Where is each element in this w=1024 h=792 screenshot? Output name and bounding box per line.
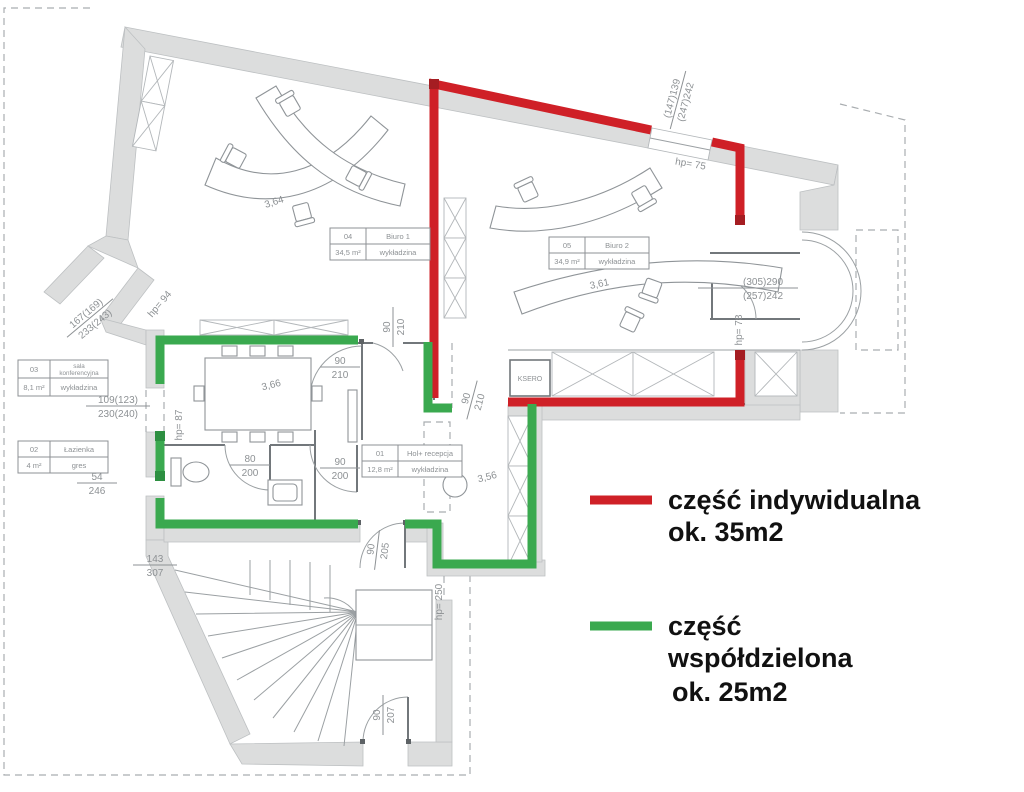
room-id: 02 [30,445,38,454]
reception-desk [348,390,357,442]
bay-window [710,232,861,350]
dim-hp87: hp= 87 [174,409,185,440]
dim-hp78: hp= 78 [734,314,745,345]
legend-shared-line2: współdzielona [667,643,854,673]
svg-text:90: 90 [372,709,383,721]
dim-90-210: 90 210 [320,356,360,381]
chair [194,386,204,401]
cabinet-middle [444,198,466,318]
cabinet-above-conference [200,320,348,335]
dim-90-210: 90 210 [456,378,491,423]
dim-147-247: (147)139 (247)242 [660,68,700,132]
svg-text:90: 90 [365,543,377,556]
svg-text:210: 210 [332,370,349,381]
room-id: 05 [563,241,571,250]
room-id: 03 [30,365,38,374]
room-area: 8,1 m² [23,383,45,392]
site-boundary-right [840,104,905,413]
wall-bottom-1 [230,742,363,766]
chair [278,346,293,356]
room-floor: wykładzina [60,383,99,392]
room-label-biuro1: 04 Biuro 1 34,5 m² wykładzina [330,228,430,260]
ksero-label: KSERO [518,376,543,383]
window-top [648,128,712,160]
chair [250,346,265,356]
svg-text:307: 307 [147,568,164,579]
room-name-line1: sala [73,363,85,370]
svg-text:80: 80 [244,454,256,465]
dim-109-230: 109(123) 230(240) [86,395,150,420]
cabinet-biuro2-bottom [552,352,797,396]
svg-text:(257)242: (257)242 [743,291,783,302]
zone-cap [429,79,439,89]
room-name: Hol+ recepcja [407,449,454,458]
legend-shared-line1: część [668,611,742,641]
ksero-room: KSERO [510,360,550,396]
office-chair [290,202,315,227]
door-jamb [406,739,411,744]
wall-bottom-right-wing [508,405,800,420]
room-floor: gres [72,461,87,470]
door-jamb [360,739,365,744]
svg-text:54: 54 [91,472,103,483]
chair [278,432,293,442]
zone-cap [735,215,745,225]
room-floor: wykładzina [379,248,418,257]
toilet-bowl [183,462,209,482]
legend-individual-line2: ok. 35m2 [668,517,784,547]
dim-90-210: 90 210 [382,307,407,347]
dim-hp250: hp= 250 [434,583,445,620]
svg-text:(305)290: (305)290 [743,277,783,288]
legend: część indywidualna ok. 35m2 część współd… [590,485,921,707]
svg-text:207: 207 [386,706,397,723]
room-area: 34,5 m² [335,248,361,257]
svg-text:90: 90 [382,321,393,333]
stair-upper-steps [250,560,330,612]
room-label-sala: 03 sala konferencyjna 8,1 m² wykładzina [18,360,108,396]
room-id: 04 [344,232,352,241]
conference-table [205,358,311,430]
dim-90-207: 90 207 [372,695,397,735]
room-name: Biuro 2 [605,241,629,250]
legend-shared-line3: ok. 25m2 [672,677,788,707]
svg-text:90: 90 [334,457,346,468]
office-chair [618,306,645,333]
door-hall-top-arc [373,343,403,371]
floor-plan-page: KSERO 04 Biuro 1 34,5 m² wykładzina 05 B… [0,0,1024,792]
svg-text:200: 200 [332,471,349,482]
furniture-biuro1 [205,86,405,227]
shared-zone-line [160,498,358,524]
svg-text:210: 210 [396,318,407,335]
dim-hp94: hp= 94 [146,289,175,320]
room-area: 34,9 m² [554,257,580,266]
floor-plan-svg: KSERO 04 Biuro 1 34,5 m² wykładzina 05 B… [0,0,1024,792]
room-label-biuro2: 05 Biuro 2 34,9 m² wykładzina [549,237,649,269]
chair [222,346,237,356]
room-area: 12,8 m² [367,465,393,474]
chair [222,432,237,442]
dim-54-246: 54 246 [77,472,117,497]
bay-arc-inner [802,240,853,342]
dim-90-205: 90 205 [364,529,394,572]
room-label-hol: 01 Hol+ recepcja 12,8 m² wykładzina [362,445,462,477]
room-name: Łazienka [64,445,95,454]
chair [312,386,322,401]
furniture-conference [194,346,322,442]
wall-bottom-2 [408,742,452,766]
room-name-line2: konferencyjna [59,370,99,377]
toilet-tank [171,458,181,486]
zone-cap [155,471,165,481]
dim-90-200: 90 200 [320,457,360,482]
room-floor: wykładzina [411,465,450,474]
room-floor: wykładzina [598,257,637,266]
room-label-lazienka: 02 Łazienka 4 m² gres [18,441,108,473]
svg-text:205: 205 [379,542,392,560]
zone-cap [155,431,165,441]
svg-text:109(123): 109(123) [98,395,138,406]
wall-entry-band-a [44,246,104,304]
svg-text:143: 143 [147,554,164,565]
zone-cap [735,350,745,360]
svg-text:230(240): 230(240) [98,409,138,420]
svg-text:90: 90 [334,356,346,367]
office-chair [513,176,540,203]
svg-text:246: 246 [89,486,106,497]
bay-dashed-rect [856,230,898,350]
wall-right-lower [800,350,838,412]
door-jamb [359,339,364,344]
room-id: 01 [376,449,384,458]
chair [250,432,265,442]
svg-text:200: 200 [242,468,259,479]
wall-bottom-wing-right [436,600,452,742]
room-name: Biuro 1 [386,232,410,241]
svg-text:210: 210 [473,392,488,411]
legend-individual-line1: część indywidualna [668,485,921,515]
diag-label-hol: 3,56 [477,470,499,485]
shared-zone-line [428,342,452,408]
sink-basin [273,484,297,501]
room-area: 4 m² [27,461,43,470]
